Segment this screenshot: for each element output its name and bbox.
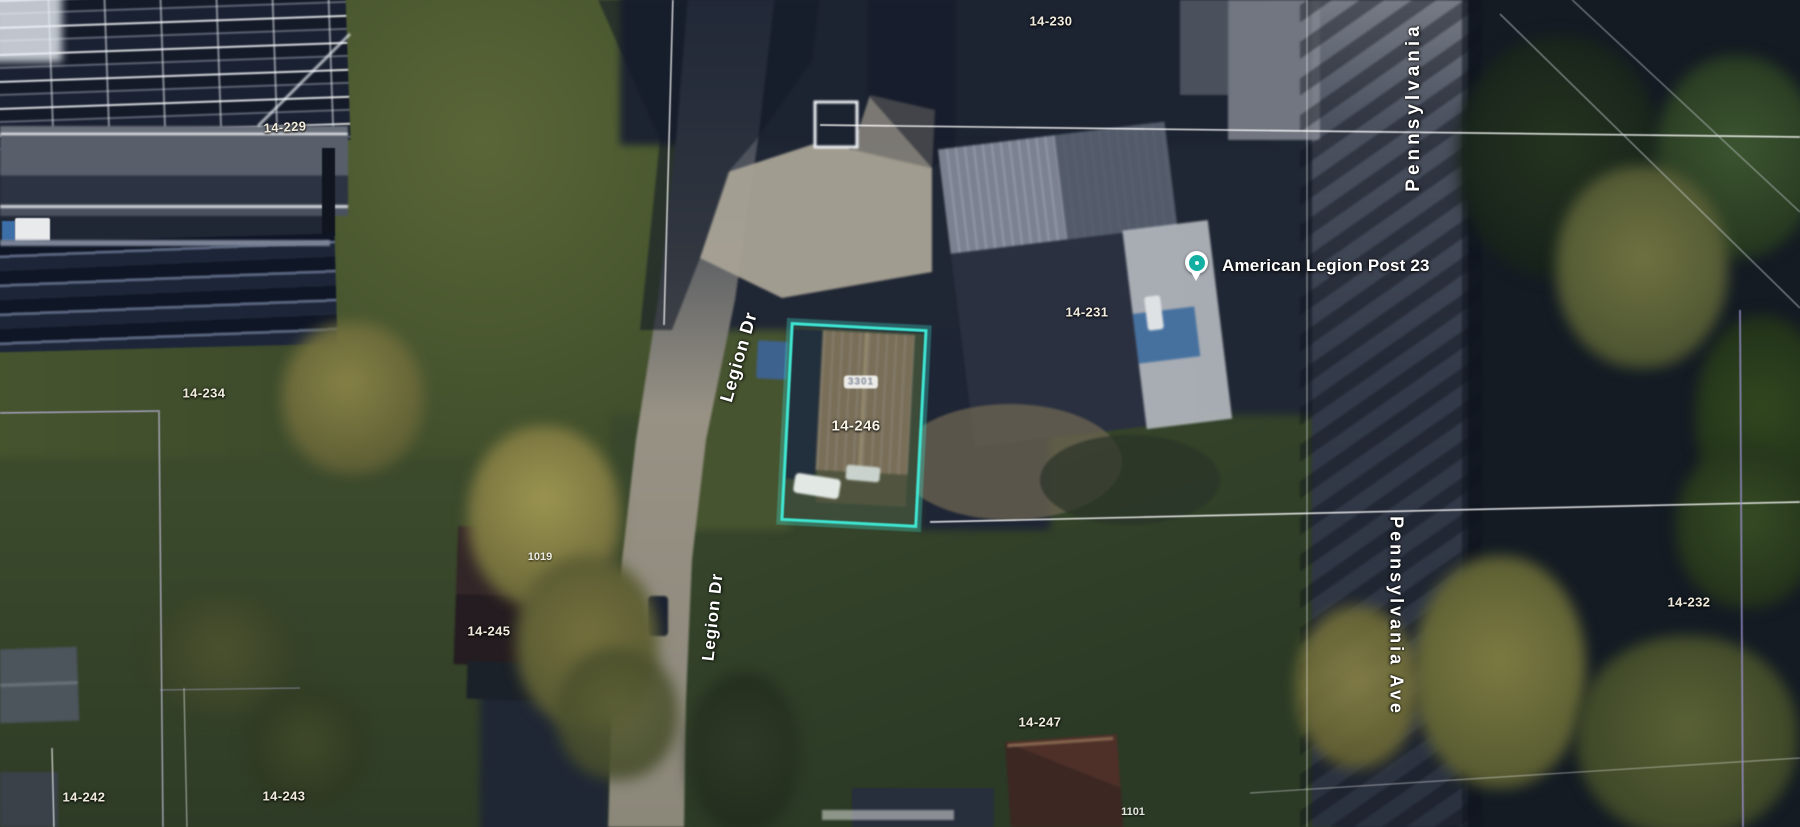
parcel-line-white-v183 — [184, 688, 187, 827]
pin-tail — [1191, 272, 1201, 281]
parcel-label-14-242: 14-242 — [63, 790, 106, 805]
pin-center-dot — [1195, 261, 1199, 265]
parcel-label-14-231: 14-231 — [1066, 305, 1109, 320]
parcel-label-14-245: 14-245 — [468, 624, 511, 639]
parcel-line-white-v53 — [52, 748, 54, 827]
power-line-2 — [1568, 0, 1800, 212]
address-label-1101: 1101 — [1121, 806, 1145, 818]
parcel-label-14-246-highlighted: 14-246 — [831, 418, 880, 435]
address-label-1019: 1019 — [528, 551, 552, 563]
power-line-1 — [1500, 14, 1800, 308]
place-label-american-legion[interactable]: American Legion Post 23 — [1222, 256, 1430, 276]
parcel-line-bottom-right — [1250, 758, 1800, 793]
place-marker-pin[interactable] — [1185, 251, 1209, 285]
parcel-label-14-230: 14-230 — [1030, 14, 1073, 29]
parcel-label-14-232: 14-232 — [1668, 595, 1711, 610]
street-label-pennsylvania-ave: Pennsylvania Ave — [1386, 516, 1407, 716]
parcel-label-14-229: 14-229 — [263, 118, 307, 135]
parcel-line-top — [820, 125, 1800, 137]
street-label-pennsylvania-upper: Pennsylvania — [1403, 22, 1425, 191]
parcel-line-lavender-h690 — [160, 688, 300, 690]
parcel-line-lavender-left-h — [0, 411, 160, 413]
parcel-line-purple-right — [1740, 310, 1743, 827]
satellite-map-canvas[interactable]: 14-229 14-230 14-231 14-232 14-234 14-24… — [0, 0, 1800, 827]
parcel-label-14-234: 14-234 — [183, 386, 226, 401]
parcel-line-vertical-top — [664, 0, 673, 325]
roof-address-chip-3301: 3301 — [844, 376, 878, 389]
parcel-line-mid — [930, 502, 1800, 522]
parcel-line-lavender-left-v — [159, 412, 163, 827]
parcel-label-14-243: 14-243 — [263, 789, 306, 804]
parcel-label-14-247: 14-247 — [1019, 715, 1062, 730]
